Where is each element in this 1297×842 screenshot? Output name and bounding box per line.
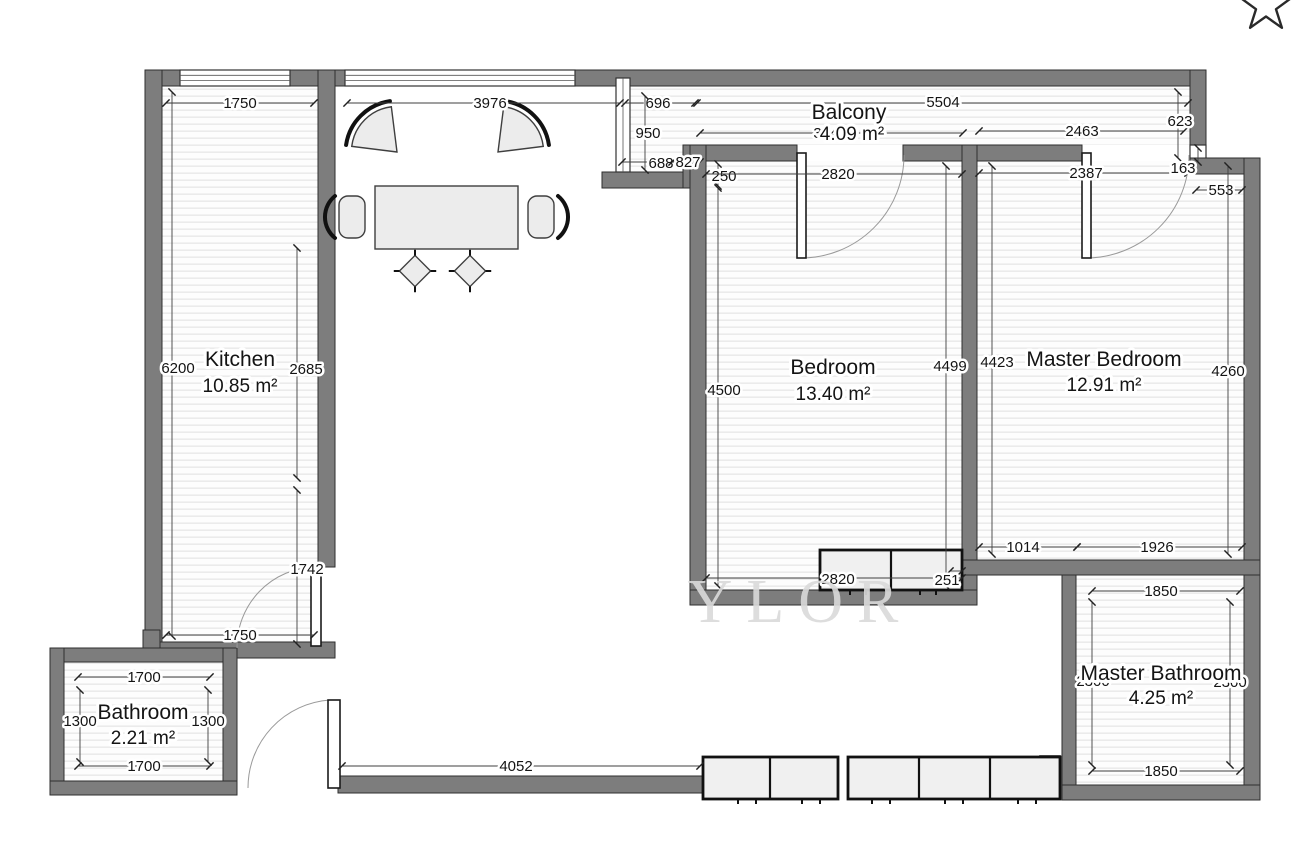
dim-bath-top: 1700 (127, 669, 160, 686)
dim-master-bottom-right: 1926 (1140, 539, 1173, 556)
dim-balcony-696: 696 (645, 95, 670, 112)
wall-master-bathroom-bottom (1062, 785, 1260, 800)
kitchen-area: 10.85 m² (203, 376, 278, 397)
wall-bottom-hall (338, 776, 703, 793)
hallway-wardrobe-left (703, 757, 838, 804)
wall-bedroom-left (690, 145, 706, 605)
dim-mbath-top: 1850 (1144, 583, 1177, 600)
kitchen-window (180, 70, 290, 86)
dim-bath-bottom: 1700 (127, 758, 160, 775)
floor-plan-drawing: 1750 3976 696 5504 950 3049 2463 623 688… (0, 0, 1297, 842)
dining-chair-right (528, 196, 568, 238)
dim-master-right: 4260 (1211, 363, 1244, 380)
dim-balcony-623: 623 (1167, 113, 1192, 130)
dim-balcony-total: 5504 (926, 94, 959, 111)
balcony-area: 4.09 m² (820, 124, 884, 145)
master-bedroom-label: Master Bedroom (1026, 348, 1181, 371)
dim-living-top: 3976 (473, 95, 506, 112)
wall-bathroom-top (50, 648, 237, 662)
living-room-window (345, 70, 575, 86)
dim-balcony-2463: 2463 (1065, 123, 1098, 140)
dim-bath-right: 1300 (191, 713, 224, 730)
dim-bath-left: 1300 (63, 713, 96, 730)
wall-master-bathroom-left (1062, 575, 1076, 800)
bedroom-label: Bedroom (790, 356, 875, 379)
wall-top (145, 70, 1206, 86)
lounge-chair-left (339, 94, 419, 174)
dim-balcony-950: 950 (635, 125, 660, 142)
wall-right-outer (1244, 158, 1260, 800)
wall-master-bedroom-bottom (962, 560, 1260, 575)
bathroom-label: Bathroom (97, 701, 188, 724)
bedroom-area: 13.40 m² (796, 384, 871, 405)
dim-kitchen-right-upper: 2685 (289, 361, 322, 378)
bathroom-area: 2.21 m² (111, 728, 175, 749)
wall-kitchen-right (318, 70, 335, 567)
stool-left (394, 250, 436, 292)
kitchen-label: Kitchen (205, 348, 275, 371)
dim-bedroom-left: 4500 (707, 382, 740, 399)
dim-hall-bottom: 4052 (499, 758, 532, 775)
dim-balcony-688: 688 (648, 155, 673, 172)
dim-master-left: 4423 (980, 354, 1013, 371)
dim-kitchen-right-lower: 1742 (290, 561, 323, 578)
master-bathroom-label: Master Bathroom (1080, 662, 1241, 685)
balcony-label: Balcony (812, 101, 887, 124)
master-bathroom-area: 4.25 m² (1129, 688, 1193, 709)
entry-door (248, 700, 340, 788)
dim-bedroom-right: 4499 (933, 358, 966, 375)
dim-bedroom-250: 250 (711, 168, 736, 185)
balcony-door-window (616, 78, 630, 172)
dim-notch-163: 163 (1170, 160, 1195, 177)
dim-bedroom-top: 2820 (821, 166, 854, 183)
dim-step-553: 553 (1208, 182, 1233, 199)
wall-bathroom-bottom (50, 781, 237, 795)
hallway-wardrobe-right (848, 757, 1060, 804)
wall-balcony-bedroom-2 (903, 145, 1082, 161)
dim-master-top: 2387 (1069, 165, 1102, 182)
dim-balcony-827: 827 (675, 154, 700, 171)
dim-kitchen-left: 6200 (161, 360, 194, 377)
dim-kitchen-bottom: 1750 (223, 627, 256, 644)
dim-master-bottom-left: 1014 (1006, 539, 1039, 556)
favorite-star-icon[interactable] (1240, 0, 1291, 28)
wall-bathroom-right (223, 648, 237, 795)
watermark-text: YLOR (688, 568, 913, 636)
dim-mbath-bottom: 1850 (1144, 763, 1177, 780)
dim-wardrobe-251: 251 (934, 572, 959, 589)
dim-kitchen-top: 1750 (223, 95, 256, 112)
master-bedroom-area: 12.91 m² (1067, 375, 1142, 396)
wall-kitchen-left (145, 70, 162, 658)
wall-bathroom-connector (143, 630, 160, 650)
stool-right (449, 250, 491, 292)
floor-plan-page: 1750 3976 696 5504 950 3049 2463 623 688… (0, 0, 1297, 842)
wall-bathroom-left (50, 648, 64, 795)
wall-bedroom-master-divider (962, 145, 977, 605)
dining-table (375, 186, 518, 249)
